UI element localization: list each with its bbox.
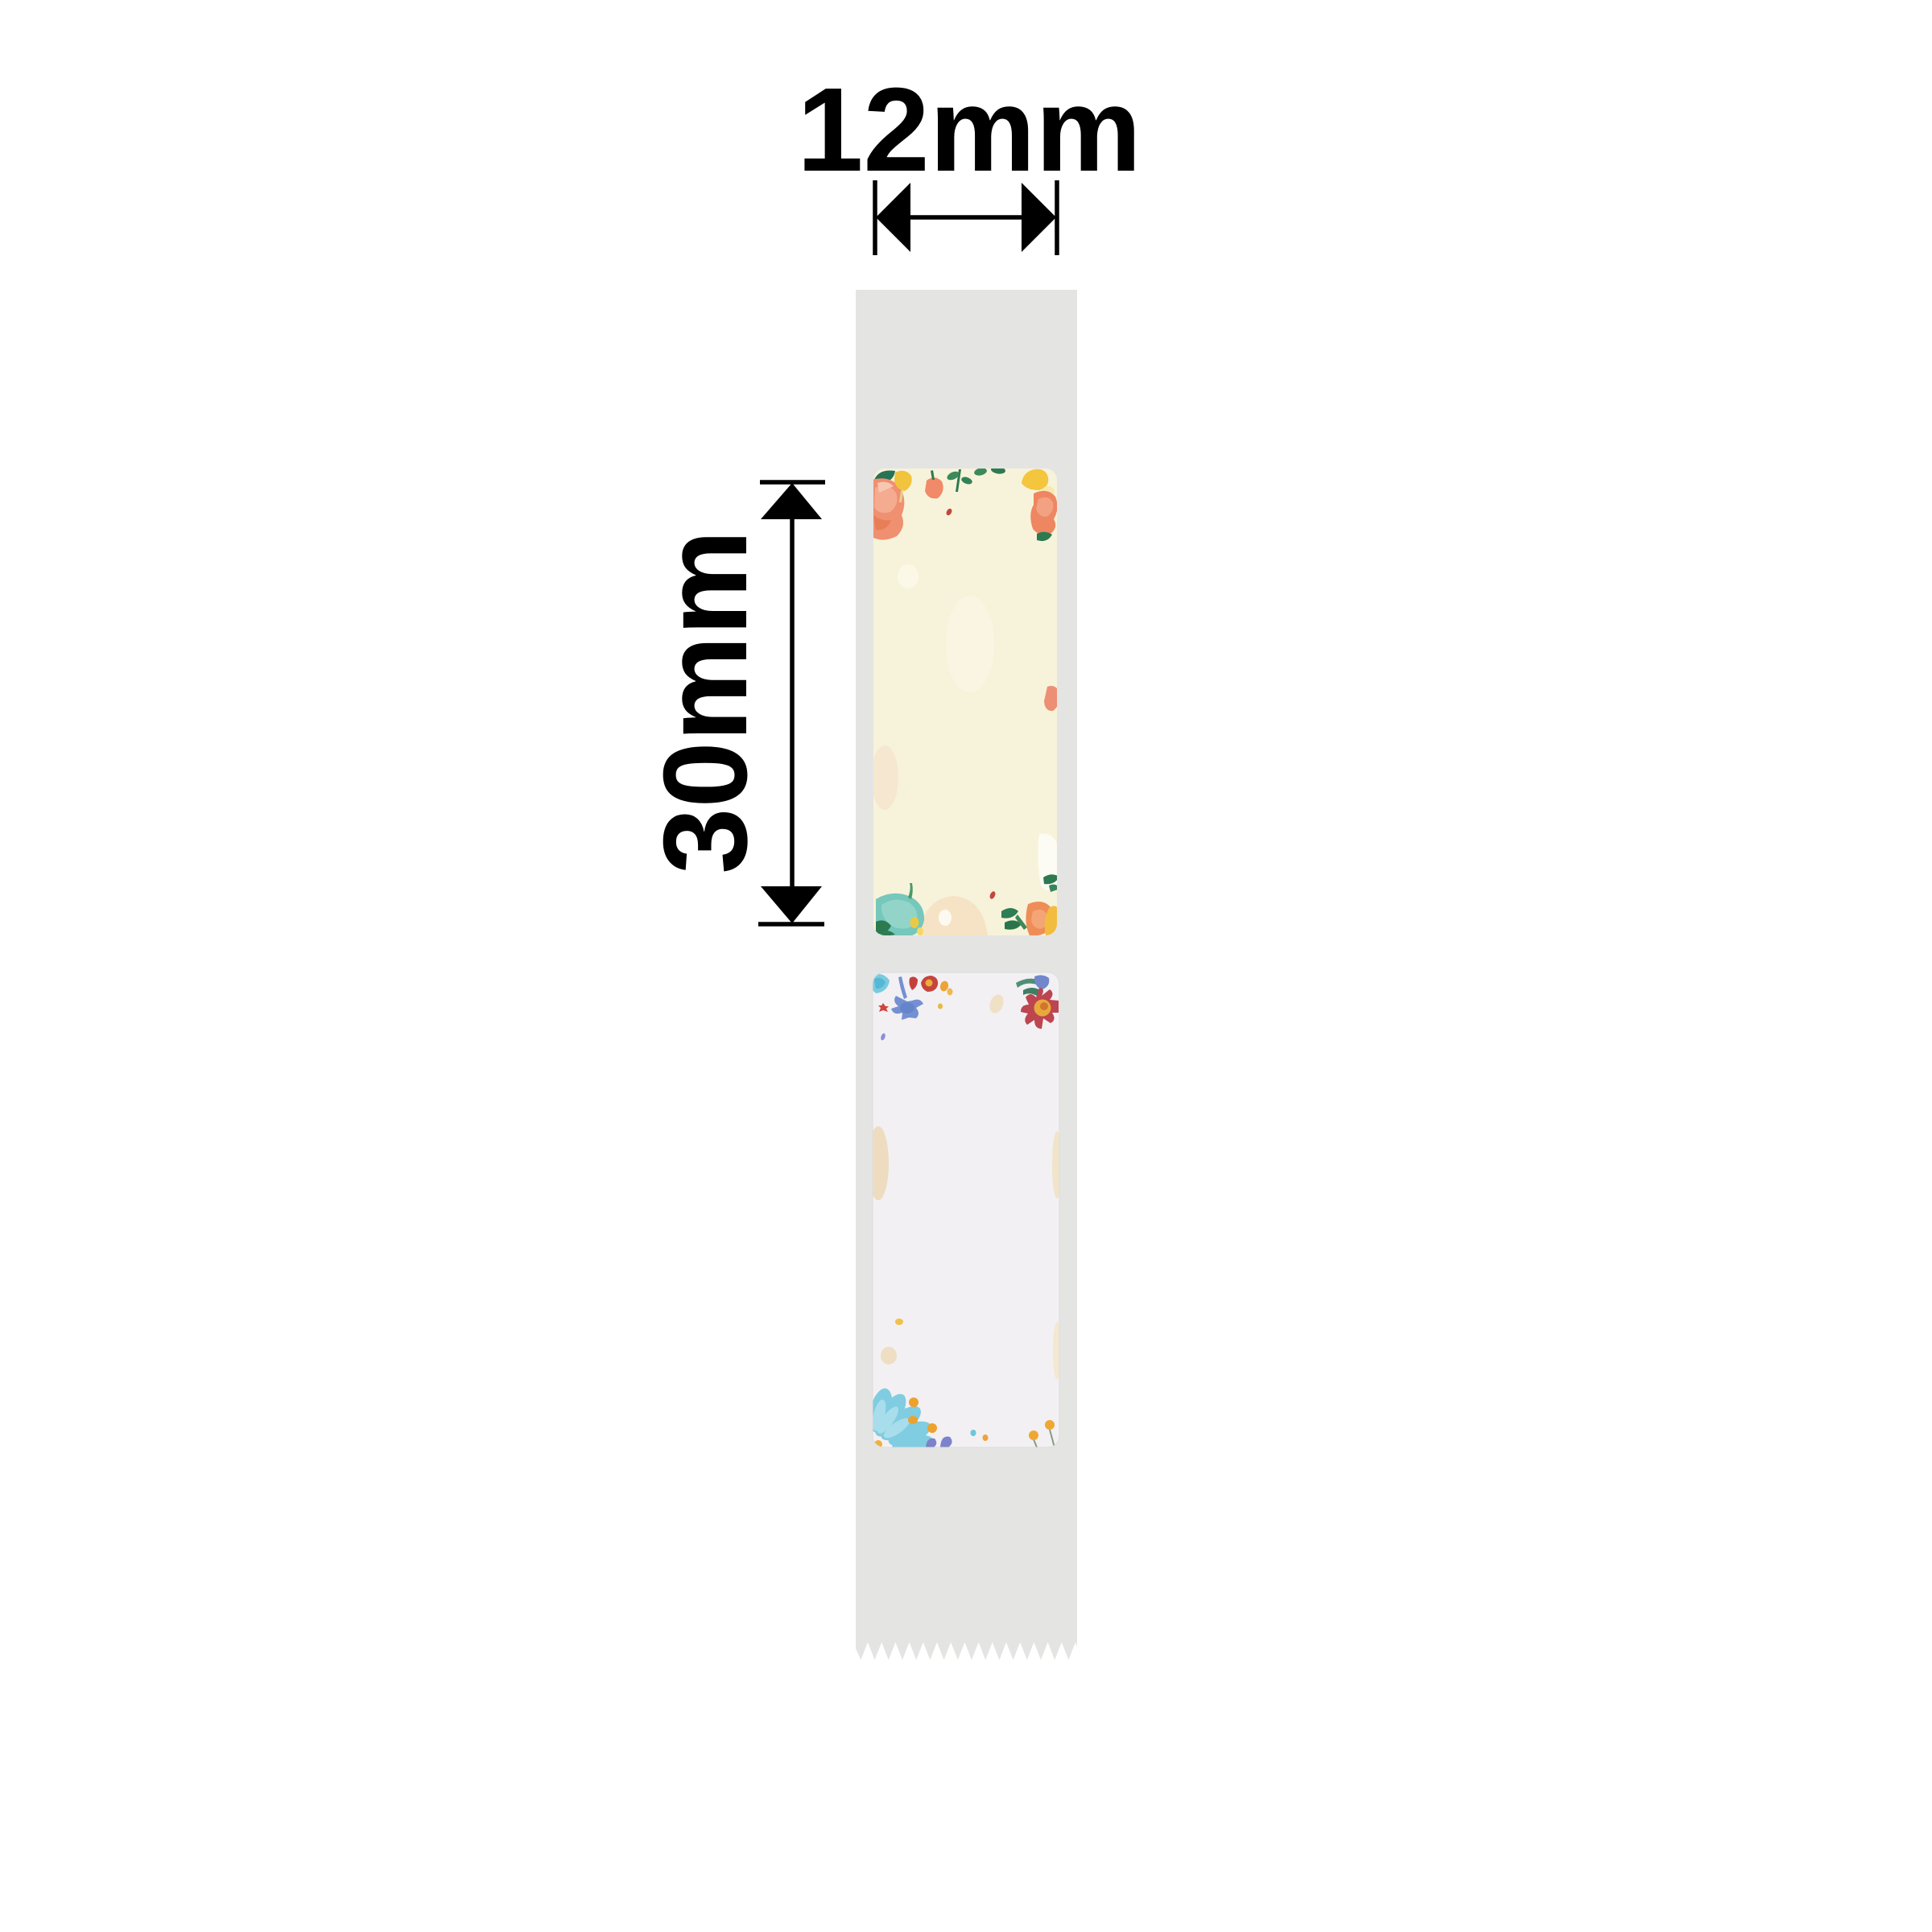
svg-text:12mm: 12mm (797, 64, 1141, 196)
svg-text:30mm: 30mm (639, 530, 772, 874)
